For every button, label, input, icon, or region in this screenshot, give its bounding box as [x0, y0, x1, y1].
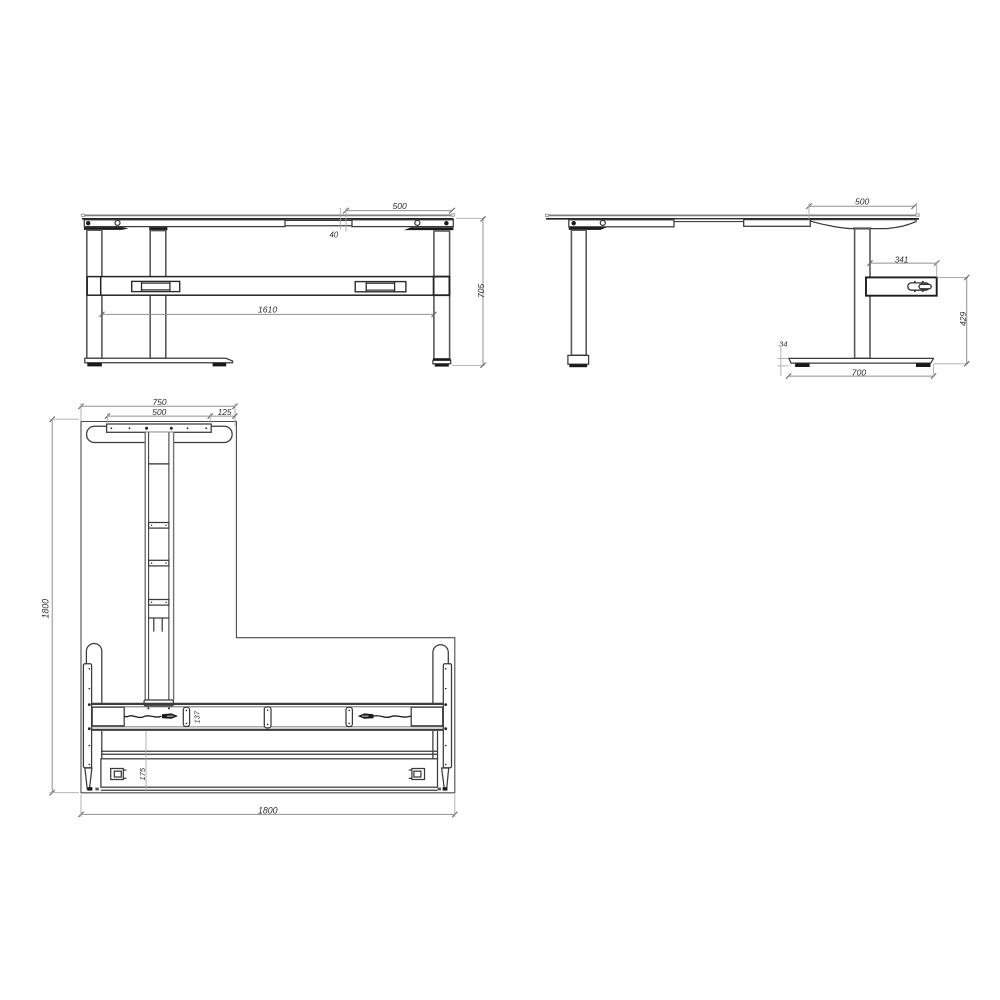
svg-text:34: 34 — [779, 340, 787, 349]
svg-text:40: 40 — [330, 231, 339, 240]
svg-text:750: 750 — [153, 397, 167, 407]
svg-text:1800: 1800 — [41, 599, 51, 619]
svg-text:341: 341 — [895, 255, 909, 264]
svg-text:1800: 1800 — [258, 806, 278, 816]
svg-text:500: 500 — [393, 201, 408, 211]
svg-text:125: 125 — [218, 407, 232, 417]
svg-text:1610: 1610 — [258, 305, 277, 315]
svg-text:137: 137 — [193, 710, 202, 723]
svg-text:705: 705 — [476, 283, 486, 298]
svg-text:700: 700 — [852, 368, 867, 378]
svg-text:500: 500 — [152, 407, 166, 417]
svg-text:500: 500 — [855, 197, 870, 207]
svg-text:175: 175 — [138, 767, 147, 780]
svg-text:429: 429 — [958, 311, 968, 326]
